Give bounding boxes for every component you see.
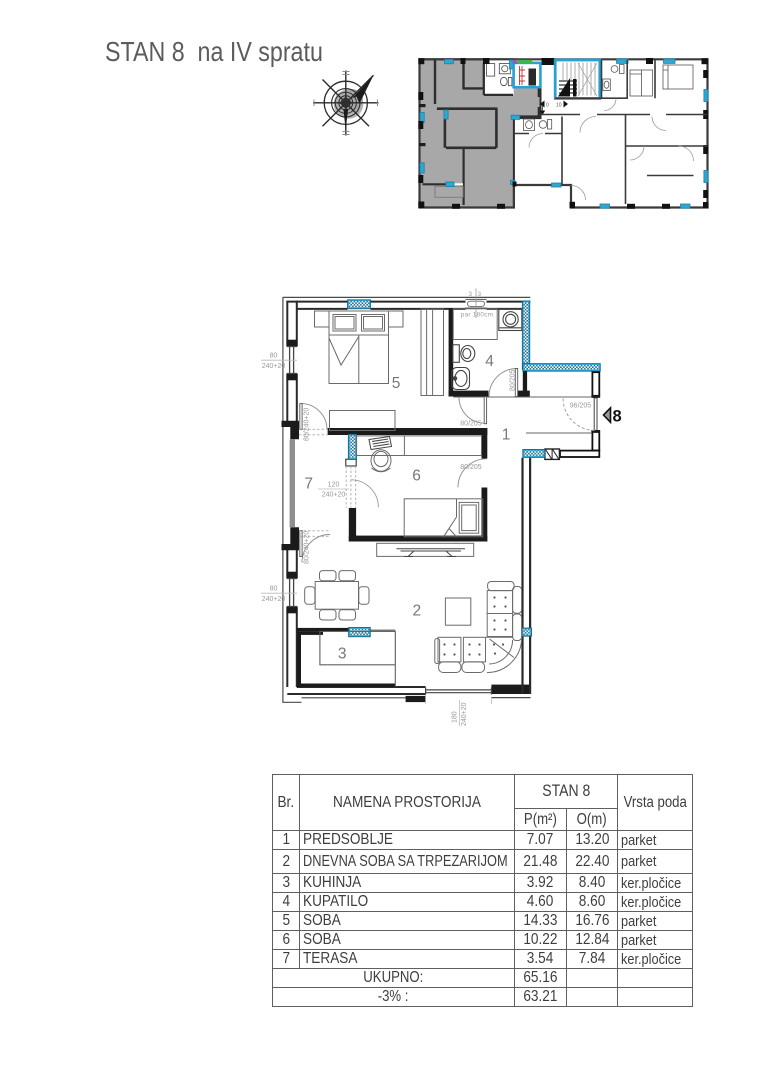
svg-text:80/240+20: 80/240+20 [304,408,311,441]
svg-text:4: 4 [485,353,494,370]
svg-text:180: 180 [452,711,459,723]
svg-text:3: 3 [338,646,347,663]
svg-text:2: 2 [412,603,421,620]
svg-text:240+20: 240+20 [461,702,468,726]
svg-text:240+20: 240+20 [322,492,346,499]
svg-text:3: 3 [478,291,482,298]
svg-text:240+20: 240+20 [262,363,286,370]
svg-text:5: 5 [392,375,401,392]
svg-text:80/205: 80/205 [460,421,482,428]
svg-text:80/205: 80/205 [460,464,482,471]
svg-text:3: 3 [469,291,473,298]
svg-text:6: 6 [412,468,421,485]
svg-text:7: 7 [304,476,313,493]
svg-text:10: 10 [556,103,562,109]
svg-text:240+20: 240+20 [262,596,286,603]
svg-text:par 180cm: par 180cm [461,312,493,319]
svg-text:80: 80 [270,586,278,593]
svg-text:8: 8 [613,408,622,426]
svg-text:80/205: 80/205 [510,369,517,391]
svg-text:0: 0 [546,103,549,109]
svg-text:80/240+20: 80/240+20 [304,531,311,564]
svg-text:96/205: 96/205 [570,403,592,410]
svg-text:80: 80 [270,353,278,360]
svg-text:120: 120 [328,482,340,489]
svg-text:1: 1 [502,427,511,444]
